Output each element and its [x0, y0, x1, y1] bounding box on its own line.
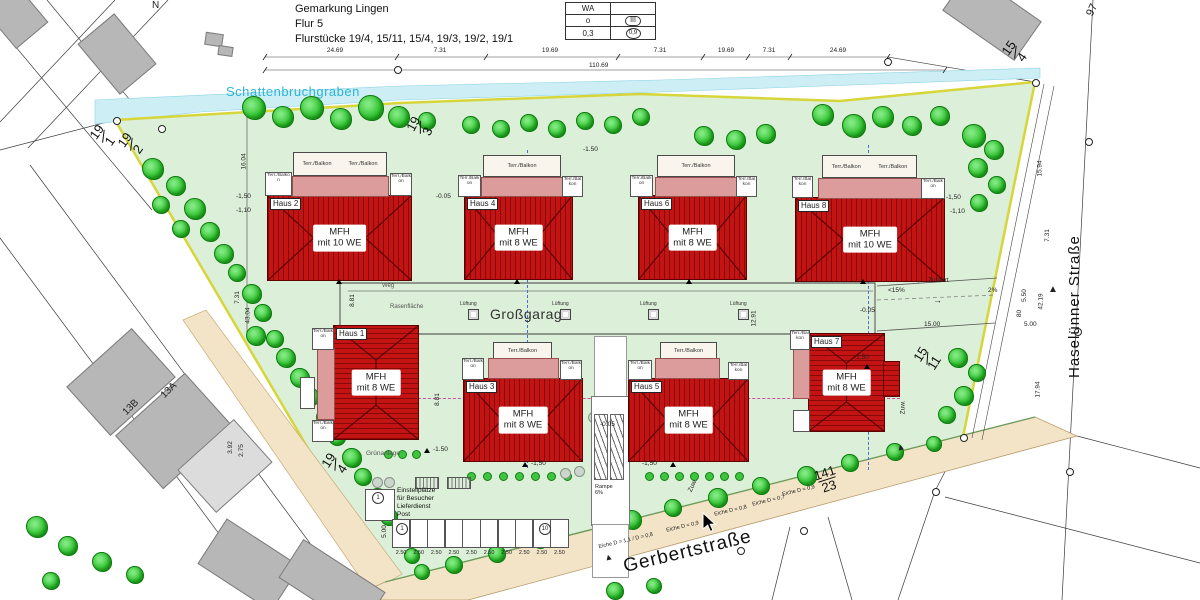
vent-label: Lüftung: [730, 301, 747, 307]
zufahrt-arrow: ←: [916, 276, 924, 285]
dim-label: 19.69: [718, 47, 734, 54]
garage-label: Großgarage: [490, 306, 570, 322]
dim-label: 7.31: [434, 47, 447, 54]
dim-label: 15.94: [1037, 160, 1044, 176]
balcony-strip: [655, 358, 720, 379]
elevation: -0.05: [860, 307, 875, 314]
dim-label: 16.04: [241, 153, 248, 169]
zuw-label: Zuw.: [899, 401, 906, 415]
vent-label: Lüftung: [552, 301, 569, 307]
survey-point: [932, 488, 940, 496]
balkon-corner-box: Terr./Balkon: [390, 173, 412, 196]
north-arrow: ▲: [1048, 284, 1058, 295]
balkon-corner-box: Terr./Balkon: [790, 330, 810, 350]
vent-shaft: [738, 309, 749, 320]
house-name: Haus 8: [798, 200, 829, 212]
elevation: -0.05: [436, 193, 451, 200]
parking-stall: 2.50: [462, 519, 480, 548]
building-haus-6: Haus 6 MFHmit 8 WE: [638, 195, 747, 280]
garage-access-corridor: [594, 336, 627, 398]
dim-label: 8.81: [434, 393, 441, 406]
legend-o: o: [566, 15, 611, 27]
stall-width-label: 2.50: [431, 550, 442, 556]
balkon-corner-box: Terr./Balkon: [921, 178, 945, 199]
street-right-label: Haselünner Straße: [1066, 228, 1083, 378]
dim-label: 19.69: [542, 47, 558, 54]
balkon-label: Terr./Balkon: [302, 161, 331, 167]
balkon-label: Terr./Balkon: [507, 163, 536, 169]
balkon-corner-box: Terr./Balkon: [458, 175, 481, 197]
entrance-marker: [860, 279, 866, 284]
survey-point: [800, 527, 808, 535]
house-type-label: MFHmit 8 WE: [664, 407, 713, 434]
elevation: -1,10: [236, 207, 251, 214]
dim-label: 8.81: [349, 294, 356, 307]
stall-width-label: 2.50: [519, 550, 530, 556]
stall-number-first: 1: [396, 523, 408, 535]
house-type-label: MFHmit 8 WE: [822, 369, 871, 396]
building-haus-5: Haus 5 MFHmit 8 WE: [628, 378, 749, 462]
ramp-label: Rampe 6%: [595, 484, 619, 496]
parcel-den: 4: [1014, 50, 1029, 63]
house-type-label: MFHmit 8 WE: [668, 224, 717, 251]
balkon-corner-box: Terr./Balkon: [736, 176, 757, 197]
elevation: -1,50: [236, 193, 251, 200]
dim-label: 42.19: [1038, 293, 1045, 309]
house-name: Haus 1: [336, 328, 367, 340]
legend-grz: 0,3: [566, 27, 611, 40]
stall-width-label: 2.50: [484, 550, 495, 556]
survey-point: [158, 125, 166, 133]
stall-width-label: 2.50: [396, 550, 407, 556]
balcony-strip: [292, 176, 389, 197]
terrace-balcony-frame: Terr./BalkonTerr./Balkon: [822, 155, 917, 178]
survey-point: [394, 66, 402, 74]
balkon-corner-box: Terr./Balkon: [630, 175, 653, 197]
house-type-label: MFHmit 8 WE: [499, 407, 548, 434]
vent-shaft: [560, 309, 571, 320]
gruenanlage-label: Grünanlage: [366, 450, 400, 457]
house-type-label: MFHmit 8 WE: [352, 369, 401, 396]
dim-label: 5.50: [1021, 289, 1028, 302]
balcony-strip: [488, 358, 559, 379]
weg-label: Weg: [382, 283, 394, 289]
dim-label: 7.31: [234, 291, 241, 304]
elevation: -1.50: [583, 146, 598, 153]
legend-gfz: 0,9: [626, 28, 641, 39]
elevation: -1,50: [854, 354, 869, 361]
parcel-den: 3: [420, 125, 435, 137]
vent-shaft: [468, 309, 479, 320]
mouse-cursor: [702, 512, 717, 533]
balkon-corner-box: [793, 410, 810, 432]
balkon-corner-box: Terr./Balkon: [265, 172, 292, 196]
house-type-label: MFHmit 10 WE: [843, 226, 897, 253]
balkon-label: Terr./Balkon: [681, 163, 710, 169]
balkon-corner-box: Terr./Balkon: [462, 358, 484, 380]
rasen-label: Rasenfläche: [390, 304, 423, 310]
terrace-balcony-frame: Terr./Balkon: [657, 155, 735, 177]
building-haus-1: Haus 1 MFHmit 8 WE: [333, 325, 419, 440]
dim-label: 2.75: [238, 444, 245, 457]
dim-label: 7.31: [1044, 229, 1051, 242]
balkon-corner-box: Terr./Balkon: [628, 360, 652, 380]
title-block: Gemarkung Lingen Flur 5 Flurstücke 19/4,…: [295, 2, 513, 47]
dim-label: 80: [1016, 310, 1023, 317]
survey-point: [960, 434, 968, 442]
parking-stall: 2.50: [550, 519, 568, 548]
parking-note: Einstellplätzefür BesucherLieferdienstPo…: [397, 487, 435, 520]
bike-stand: [447, 477, 471, 489]
building-haus-4: Haus 4 MFHmit 8 WE: [464, 195, 573, 280]
balkon-label: Terr./Balkon: [348, 161, 377, 167]
balkon-corner-box: Terr./Balkon: [792, 176, 813, 198]
balkon-label: Terr./Balkon: [508, 348, 537, 354]
terrace-balcony-frame: Terr./Balkon: [493, 342, 552, 359]
dim-total-label: 110.69: [588, 62, 609, 69]
zoning-legend: WA oIII 0,30,9: [565, 2, 656, 40]
elevation-marker: [424, 448, 430, 453]
survey-point: [1085, 138, 1093, 146]
balcony-strip: [818, 178, 922, 199]
existing-building: [217, 45, 233, 57]
slope-label: <15%: [888, 287, 905, 294]
stall-width-label: 2.50: [466, 550, 477, 556]
elevation-marker: [522, 462, 528, 467]
dim-label: 43.04: [245, 307, 252, 323]
balkon-corner-box: Terr./Balkon: [312, 328, 334, 350]
survey-point: [1032, 79, 1040, 87]
parking-stall: 2.50: [480, 519, 498, 548]
house-name: Haus 5: [631, 381, 662, 393]
site-plan: 13B 13A: [0, 0, 1200, 600]
elevation: -0.05: [600, 421, 615, 428]
building-haus-7: Haus 7 MFHmit 8 WE: [808, 333, 885, 432]
house-name: Haus 6: [641, 198, 672, 210]
zufahrt-arrow: →: [933, 295, 942, 305]
terrace-balcony-frame: Terr./BalkonTerr./Balkon: [293, 152, 387, 176]
balcony-strip: [655, 177, 737, 197]
parcel-den: 2: [130, 142, 145, 155]
building-haus-7-annex: [883, 361, 900, 397]
terrace-balcony-frame: Terr./Balkon: [483, 155, 561, 177]
dim-label: 12.91: [751, 310, 758, 326]
dim-label: 7.31: [763, 47, 776, 54]
house-name: Haus 4: [467, 198, 498, 210]
dim-label: 15.00: [924, 321, 940, 328]
survey-point: [884, 58, 892, 66]
survey-point: [113, 117, 121, 125]
parking-stall: 2.50: [445, 519, 463, 548]
elevation: -1,50: [531, 460, 546, 467]
title-line-3: Flurstücke 19/4, 15/11, 15/4, 19/3, 19/2…: [295, 32, 513, 47]
dim-label: 17.94: [1035, 381, 1042, 397]
parking-note-line: für Besucher: [397, 495, 435, 503]
house-name: Haus 7: [811, 336, 842, 348]
dim-label: 24.69: [327, 47, 343, 54]
elevation: -1,50: [642, 460, 657, 467]
parcel-slash: [420, 121, 421, 134]
parking-note-line: Einstellplätze: [397, 487, 435, 495]
balkon-label: Terr./Balkon: [832, 164, 861, 170]
parking-depth-label: 5.00: [381, 525, 388, 538]
parcel-den: 4: [335, 462, 350, 475]
stall-width-label: 2.50: [413, 550, 424, 556]
stall-width-label: 2.50: [554, 550, 565, 556]
parking-info-symbol: 1: [372, 492, 384, 504]
dim-label: 24.69: [830, 47, 846, 54]
elevation: -1.50: [433, 446, 448, 453]
balcony-strip: [793, 348, 810, 399]
house-name: Haus 3: [466, 381, 497, 393]
dim-label: 3.92: [227, 441, 234, 454]
title-line-1: Gemarkung Lingen: [295, 2, 513, 17]
elevation: -1,10: [950, 208, 965, 215]
stream-label: Schattenbruchgraben: [226, 84, 360, 99]
title-line-2: Flur 5: [295, 17, 513, 32]
dim-label: 5.00: [1024, 321, 1037, 328]
terrace-balcony-frame: Terr./Balkon: [660, 342, 717, 359]
house-type-label: MFHmit 8 WE: [494, 224, 543, 251]
entrance-marker: [336, 279, 342, 284]
stall-width-label: 2.50: [449, 550, 460, 556]
balkon-corner-box: Terr./Balkon: [562, 176, 583, 197]
balkon-corner-box: Terr./Balkon: [312, 420, 334, 442]
legend-blank: [611, 3, 656, 15]
survey-point: [1066, 468, 1074, 476]
parking-stall: 2.50: [515, 519, 533, 548]
vent-label: Lüftung: [640, 301, 657, 307]
parking-stall: 2.50: [427, 519, 445, 548]
north-letter: N: [152, 0, 159, 11]
slope-label: 2%: [988, 287, 997, 294]
parking-stall: 2.50: [410, 519, 428, 548]
balkon-label: Terr./Balkon: [674, 348, 703, 354]
stall-width-label: 2.50: [536, 550, 547, 556]
elevation-marker: [670, 462, 676, 467]
balcony-strip: [317, 348, 335, 420]
zufahrt-label: Zufahrt: [928, 277, 949, 284]
entrance-marker: [686, 279, 692, 284]
building-haus-8: Haus 8 MFHmit 10 WE: [795, 197, 945, 282]
vent-shaft: [648, 309, 659, 320]
entrance-marker: [514, 279, 520, 284]
balkon-corner-box: Terr./Balkon: [560, 360, 582, 380]
legend-storeys: III: [625, 16, 641, 26]
balkon-label: Terr./Balkon: [878, 164, 907, 170]
vent-label: Lüftung: [460, 301, 477, 307]
building-haus-2: Haus 2 MFHmit 10 WE: [267, 195, 412, 281]
balcony-strip: [481, 177, 563, 197]
house-name: Haus 2: [270, 198, 301, 210]
dim-label: 7.31: [654, 47, 667, 54]
elevation: -1,50: [946, 194, 961, 201]
building-haus-3: Haus 3 MFHmit 8 WE: [463, 378, 583, 462]
balkon-corner-box: Terr./Balkon: [728, 362, 749, 380]
stall-width-label: 2.50: [501, 550, 512, 556]
house-type-label: MFHmit 10 WE: [313, 225, 367, 252]
legend-wa: WA: [566, 3, 611, 15]
parking-note-line: Lieferdienst: [397, 503, 435, 511]
parking-stall: 2.50: [498, 519, 516, 548]
stall-number-last: 10: [539, 523, 551, 535]
balkon-corner-box: [300, 377, 315, 409]
